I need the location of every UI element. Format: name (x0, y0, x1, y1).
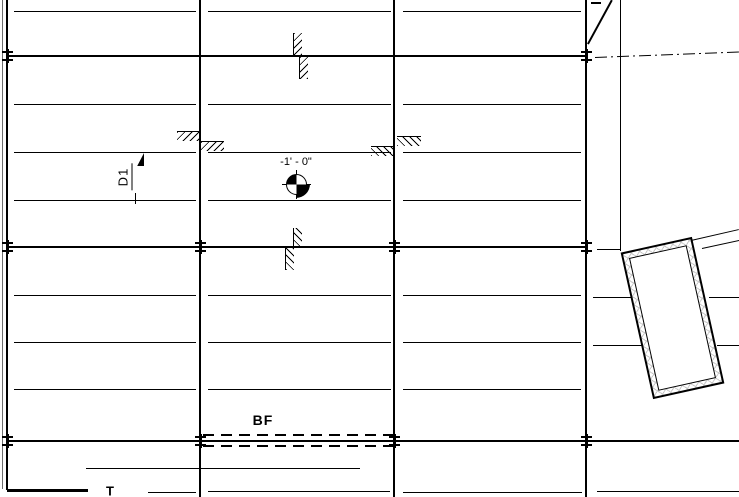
step-hatch-mark (299, 57, 308, 79)
boundary-line[interactable] (403, 492, 582, 493)
grid-intersection-tick (199, 434, 202, 448)
framing-line[interactable] (403, 295, 581, 296)
d1-extension-tick[interactable] (135, 193, 136, 204)
spot-elevation-text[interactable]: -1' - 0" (280, 156, 312, 168)
framing-line[interactable] (208, 11, 391, 12)
step-hatch-mark (285, 248, 294, 270)
centerline[interactable] (595, 51, 739, 58)
framing-line[interactable] (14, 104, 196, 105)
section-cut-line[interactable] (587, 0, 613, 45)
framing-line[interactable] (403, 152, 581, 153)
framing-line[interactable] (14, 11, 196, 12)
step-hatch-mark (371, 146, 395, 156)
grid-intersection-tick (6, 240, 9, 254)
framing-line[interactable] (403, 389, 581, 390)
boundary-line[interactable] (208, 491, 390, 492)
grid-intersection-tick (585, 240, 588, 254)
footing-line-bf[interactable] (7, 440, 739, 443)
framing-line[interactable] (403, 342, 581, 343)
framing-line[interactable] (208, 342, 391, 343)
step-hatch-mark (293, 33, 302, 57)
wall-edge-line[interactable] (620, 0, 621, 251)
framing-line[interactable] (14, 389, 196, 390)
footing-dashed-edge[interactable] (203, 434, 399, 436)
framing-line[interactable] (403, 104, 581, 105)
framing-line[interactable] (208, 295, 391, 296)
framing-line[interactable] (717, 345, 739, 346)
boundary-line[interactable] (148, 492, 196, 493)
framing-line[interactable] (593, 345, 643, 346)
grid-intersection-tick (6, 434, 9, 448)
step-hatch-mark (201, 141, 224, 151)
framing-line[interactable] (14, 295, 196, 296)
spot-elevation-target-icon[interactable] (282, 170, 310, 198)
framing-line[interactable] (403, 11, 581, 12)
top-dash[interactable] (591, 2, 601, 4)
d1-arrow-icon (136, 153, 144, 166)
spot-quadrant-disc (286, 174, 307, 195)
grid-intersection-tick (585, 49, 588, 63)
framing-line[interactable] (208, 200, 391, 201)
wall-corner-line[interactable] (7, 489, 88, 492)
framing-line[interactable] (208, 104, 391, 105)
spot-tick-south (296, 195, 297, 199)
framing-line[interactable] (208, 152, 391, 153)
grid-intersection-tick (393, 434, 396, 448)
framing-line[interactable] (403, 200, 581, 201)
boundary-line[interactable] (86, 468, 360, 469)
spot-tick-north (296, 170, 297, 174)
footing-pad-outline[interactable] (620, 237, 724, 399)
grid-intersection-tick (393, 240, 396, 254)
grid-intersection-tick (6, 49, 9, 63)
footing-pad-inner (628, 245, 715, 391)
view-edge-line[interactable] (2, 0, 3, 489)
step-hatch-mark (293, 228, 302, 248)
framing-line[interactable] (208, 389, 391, 390)
beam-tag-d1[interactable]: D1 (116, 164, 133, 191)
plan-view-canvas[interactable]: BF D1 T -1' - 0" (0, 0, 739, 497)
footing-dashed-edge[interactable] (203, 445, 399, 447)
framing-line[interactable] (14, 152, 196, 153)
wall-extension-line[interactable] (691, 229, 739, 241)
spot-tick-west (282, 184, 286, 185)
step-hatch-mark (177, 131, 201, 141)
grid-intersection-tick (585, 434, 588, 448)
framing-line[interactable] (593, 297, 631, 298)
spot-tick-east (307, 184, 311, 185)
footing-tag-bf[interactable]: BF (253, 412, 274, 428)
tag-t[interactable]: T (106, 484, 114, 497)
framing-line[interactable] (597, 249, 620, 250)
framing-line[interactable] (709, 297, 739, 298)
wall-extension-line[interactable] (702, 240, 739, 249)
grid-intersection-tick (199, 240, 202, 254)
framing-line[interactable] (14, 200, 196, 201)
step-hatch-mark (397, 136, 421, 146)
framing-line[interactable] (14, 342, 196, 343)
boundary-line[interactable] (597, 491, 739, 492)
